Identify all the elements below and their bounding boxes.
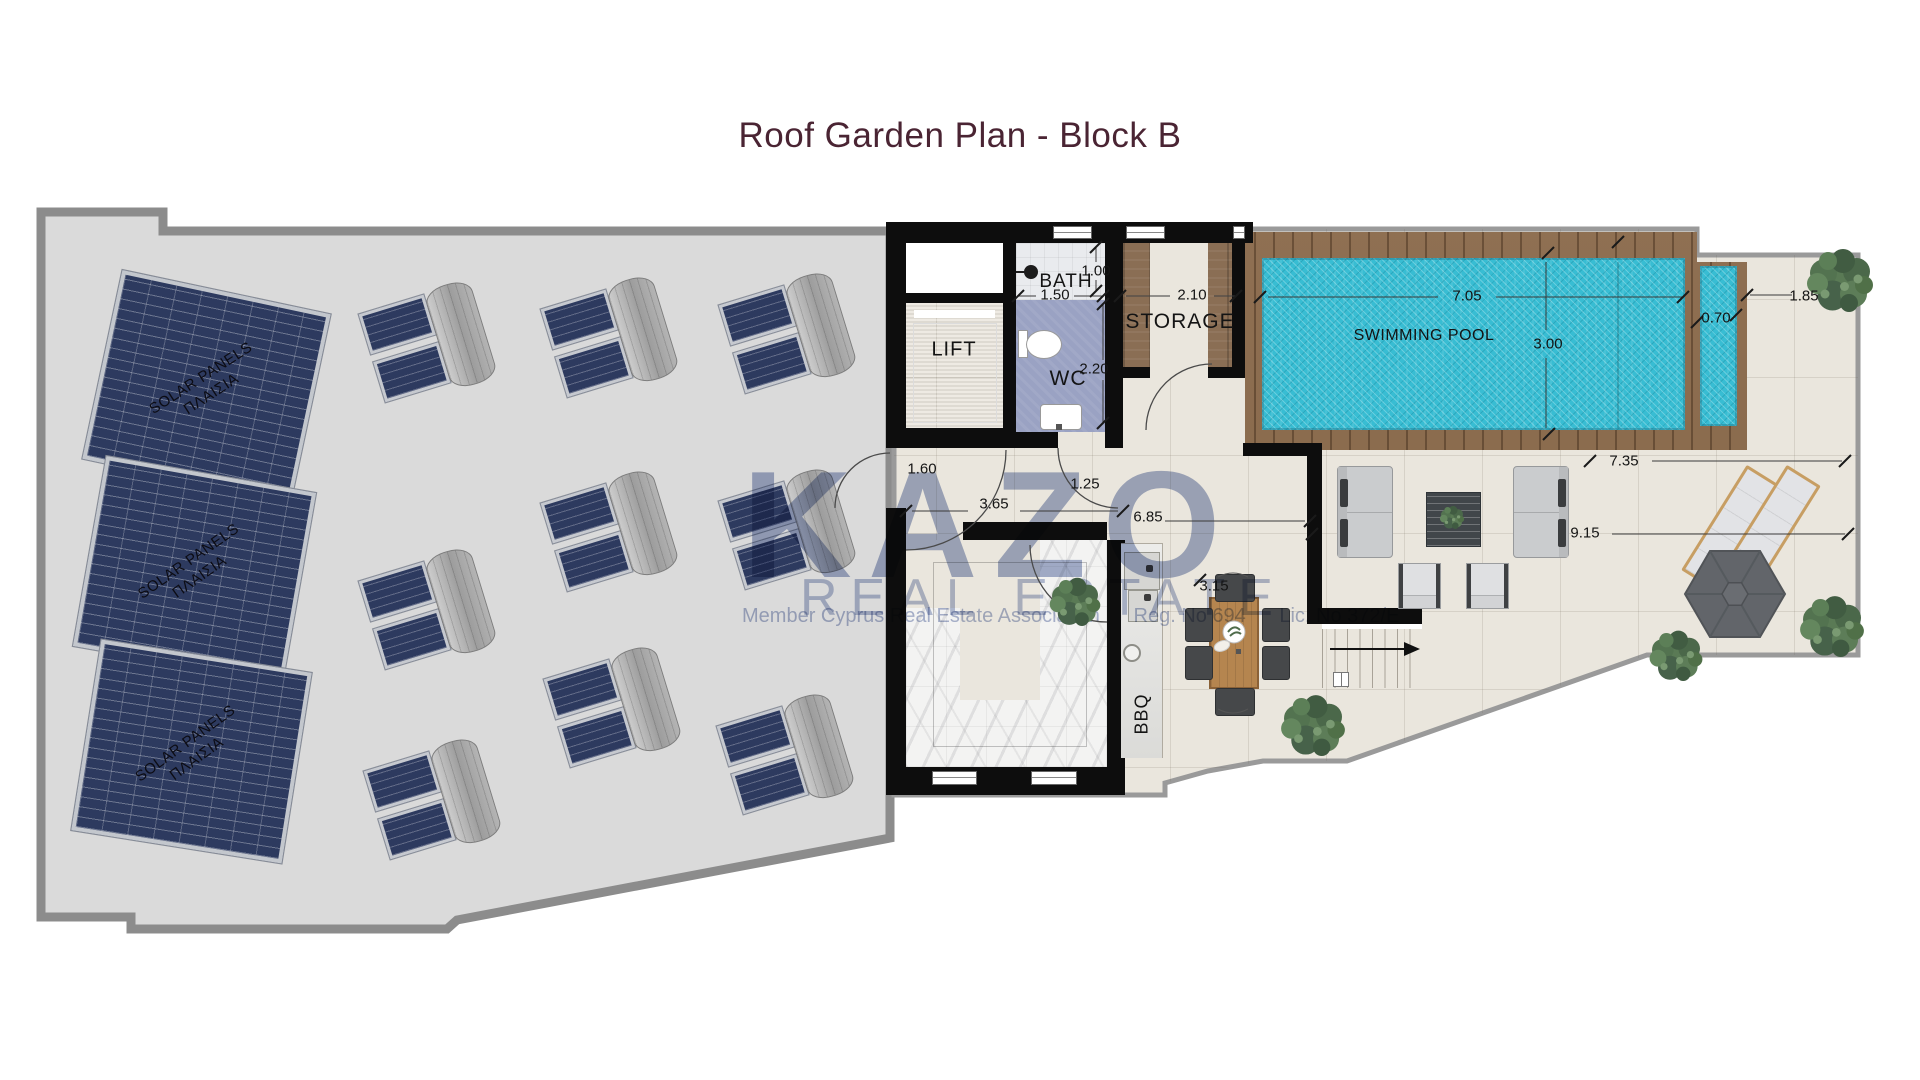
stairs-arrow-head — [1404, 642, 1420, 656]
swimming-pool-label: SWIMMING POOL — [1354, 327, 1495, 345]
plant-bush-icon — [1800, 596, 1864, 657]
umbrella-icon — [1685, 551, 1785, 637]
dim-pool-side: 0.70 — [1701, 310, 1730, 327]
dim-terrace-length: 9.15 — [1570, 525, 1599, 542]
dim-door-right: 1.25 — [1070, 476, 1099, 493]
lift-label: LIFT — [931, 339, 976, 362]
dim-hall: 6.85 — [1133, 509, 1162, 526]
dim-bath-depth: 1.50 — [1040, 287, 1069, 304]
door-arc — [1146, 364, 1212, 430]
plant-bush-icon — [1050, 578, 1101, 626]
door-arc — [835, 453, 890, 508]
dim-terrace-width: 7.35 — [1609, 453, 1638, 470]
table-item-icon — [1236, 649, 1241, 654]
chair-arc — [1218, 709, 1248, 713]
door-arcs — [835, 364, 1212, 622]
dim-deck-right: 1.85 — [1789, 288, 1818, 305]
plan-overlay — [0, 0, 1920, 1080]
potted-plant-icon — [1440, 506, 1464, 529]
dim-wc-depth: 2.20 — [1079, 361, 1108, 378]
bbq-label: BBQ — [1132, 693, 1153, 734]
dim-pool-width: 3.00 — [1533, 336, 1562, 353]
dim-dining: 3.15 — [1199, 578, 1228, 595]
floor-plan-canvas: Roof Garden Plan - Block B SOLAR PANELSΠ… — [0, 0, 1920, 1080]
chair-arc — [1218, 573, 1248, 577]
dim-corridor: 3.65 — [979, 496, 1008, 513]
plant-bush-icon — [1650, 631, 1703, 681]
dim-storage-width: 2.10 — [1177, 287, 1206, 304]
dim-pool-length: 7.05 — [1452, 288, 1481, 305]
dim-door-left: 1.60 — [907, 461, 936, 478]
plant-bush-icon — [1281, 695, 1345, 756]
storage-label: STORAGE — [1125, 310, 1234, 334]
dim-bath-width: 1.00 — [1081, 263, 1110, 280]
